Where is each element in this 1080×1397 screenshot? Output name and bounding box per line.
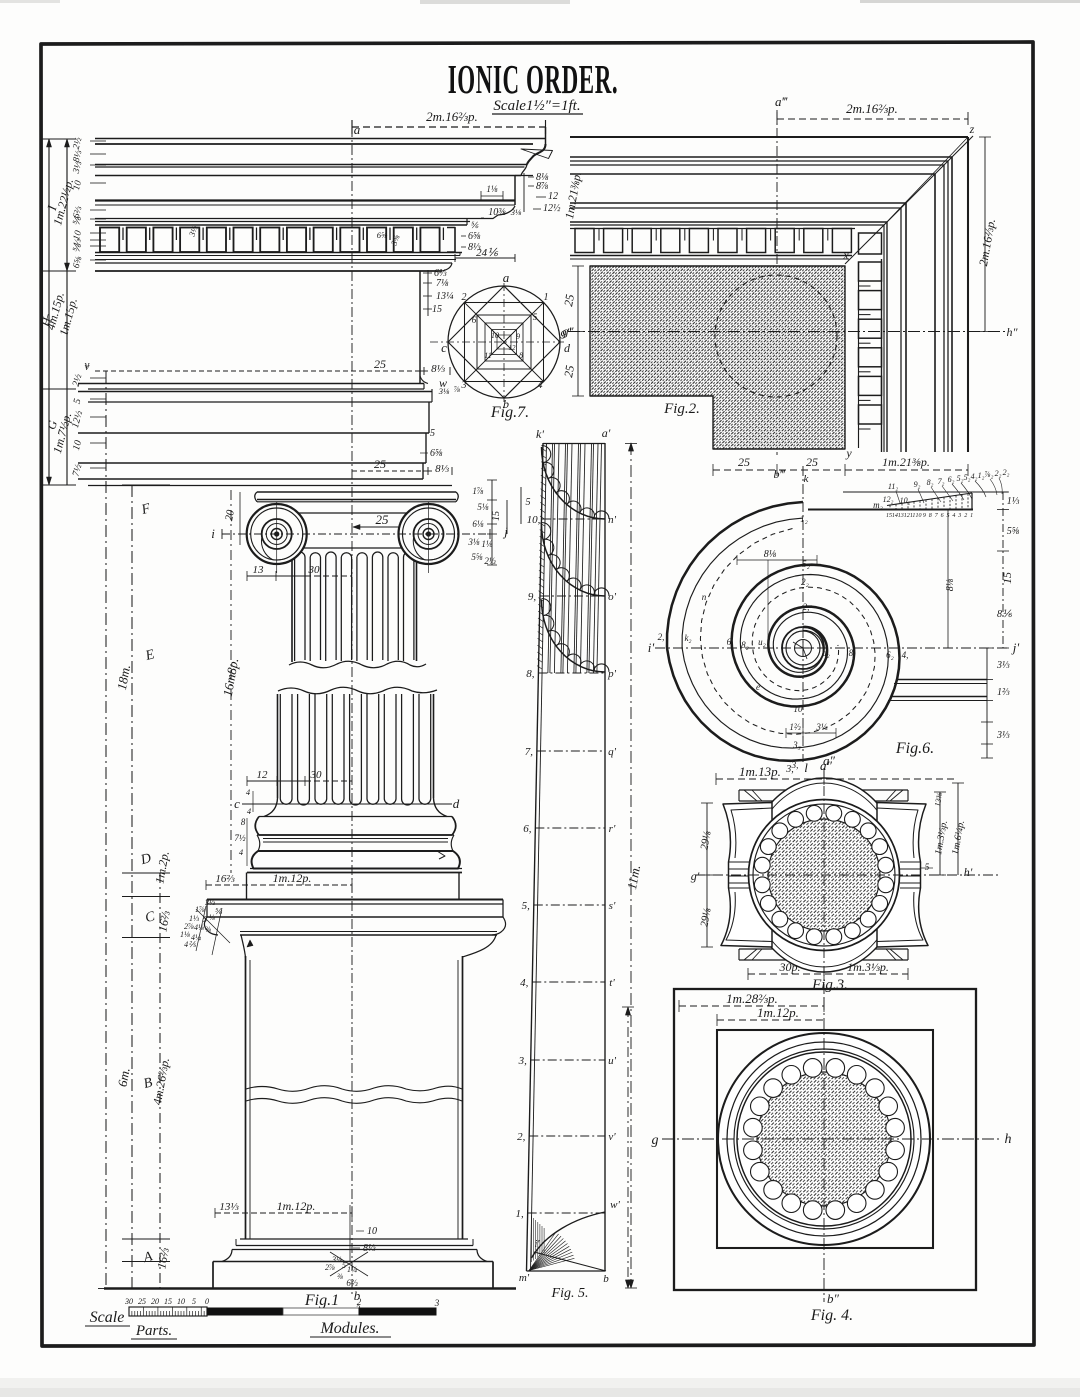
svg-text:1₂: 1₂: [800, 514, 808, 524]
svg-text:7₂: 7₂: [938, 477, 945, 486]
svg-text:2: 2: [357, 1297, 362, 1307]
svg-text:h': h': [964, 865, 973, 879]
svg-text:25: 25: [561, 293, 577, 307]
svg-text:1: 1: [970, 513, 973, 519]
svg-text:Scale1½″=1ft.: Scale1½″=1ft.: [493, 98, 580, 114]
svg-text:4⅖: 4⅖: [184, 940, 196, 949]
svg-text:16⅔: 16⅔: [215, 873, 235, 885]
svg-text:10: 10: [916, 513, 922, 519]
svg-text:5₂: 5₂: [802, 559, 810, 569]
svg-text:1⅛: 1⅛: [180, 930, 190, 939]
svg-text:30p.: 30p.: [779, 960, 801, 974]
svg-text:g″: g″: [563, 324, 575, 338]
svg-text:1m.12p.: 1m.12p.: [277, 1199, 316, 1213]
svg-text:13¼: 13¼: [436, 291, 454, 302]
svg-text:12₂: 12₂: [883, 495, 894, 504]
svg-text:1,: 1,: [516, 1208, 525, 1220]
svg-text:6: 6: [941, 513, 944, 519]
svg-text:a: a: [354, 122, 361, 137]
svg-text:5,: 5,: [522, 900, 531, 912]
svg-text:3⅓: 3⅓: [996, 660, 1010, 671]
svg-text:Fig.1: Fig.1: [304, 1292, 339, 1309]
svg-text:⅜: ⅜: [337, 1272, 343, 1281]
svg-text:2m.16⅔p.: 2m.16⅔p.: [846, 101, 898, 116]
svg-text:c: c: [441, 340, 447, 355]
svg-text:8₂: 8₂: [927, 478, 934, 487]
svg-text:c: c: [234, 796, 240, 811]
svg-text:y: y: [845, 446, 852, 460]
svg-text:4: 4: [952, 512, 955, 519]
svg-text:1: 1: [544, 292, 549, 303]
svg-text:30: 30: [124, 1297, 133, 1306]
svg-text:n: n: [702, 592, 707, 602]
svg-text:9,: 9,: [528, 591, 537, 603]
svg-text:b″: b″: [827, 1291, 840, 1306]
svg-text:2: 2: [964, 513, 967, 519]
svg-text:1⅛: 1⅛: [481, 539, 493, 549]
svg-text:e: e: [756, 682, 760, 692]
svg-text:5₂: 5₂: [957, 474, 964, 483]
svg-text:3,: 3,: [518, 1055, 528, 1067]
svg-text:m₂: m₂: [873, 500, 883, 510]
svg-text:5: 5: [192, 1297, 196, 1306]
svg-text:8: 8: [519, 351, 523, 360]
svg-text:3⅓: 3⅓: [204, 898, 215, 907]
svg-text:6⅝: 6⅝: [468, 231, 481, 242]
svg-text:25: 25: [561, 364, 577, 378]
svg-text:u': u': [608, 1055, 617, 1067]
svg-text:10,: 10,: [527, 514, 541, 526]
svg-text:30: 30: [310, 769, 323, 781]
svg-text:15: 15: [491, 511, 502, 521]
svg-text:Fig.3.: Fig.3.: [811, 977, 848, 993]
svg-text:p': p': [607, 668, 617, 680]
svg-text:a': a': [602, 426, 611, 440]
svg-text:n': n': [608, 514, 617, 526]
svg-text:w: w: [439, 376, 447, 390]
svg-text:l: l: [804, 760, 808, 775]
svg-text:r': r': [609, 823, 616, 835]
svg-text:3⅓: 3⅓: [815, 722, 828, 732]
svg-text:⅚: ⅚: [470, 220, 479, 230]
svg-text:1⅓: 1⅓: [1007, 496, 1020, 507]
svg-text:25: 25: [374, 457, 386, 471]
svg-text:15: 15: [1000, 572, 1014, 584]
svg-text:Fig.6.: Fig.6.: [895, 740, 934, 757]
svg-text:g: g: [652, 1133, 659, 1148]
svg-text:v: v: [85, 359, 90, 371]
svg-text:h: h: [1005, 1132, 1012, 1147]
svg-text:8⅓: 8⅓: [435, 463, 450, 475]
svg-text:4: 4: [538, 380, 543, 391]
svg-text:8: 8: [241, 817, 246, 827]
svg-text:5: 5: [342, 1261, 346, 1270]
svg-text:1m.13p.: 1m.13p.: [739, 764, 781, 779]
svg-text:a₂: a₂: [822, 648, 830, 658]
svg-text:3⅛: 3⅛: [467, 537, 480, 547]
svg-text:a″: a″: [823, 753, 836, 768]
svg-text:2m.16⅔p.: 2m.16⅔p.: [426, 109, 478, 124]
svg-text:3,: 3,: [785, 764, 794, 775]
svg-text:0: 0: [205, 1297, 209, 1306]
svg-text:7,: 7,: [525, 746, 534, 758]
svg-text:IONIC ORDER.: IONIC ORDER.: [448, 57, 618, 103]
svg-text:3⅓: 3⅓: [996, 730, 1010, 741]
svg-text:8⅛: 8⅛: [764, 549, 777, 560]
svg-text:30: 30: [308, 564, 321, 576]
svg-text:13⅓: 13⅓: [219, 1201, 239, 1213]
svg-text:4⅛: 4⅛: [194, 923, 204, 932]
svg-text:t': t': [609, 977, 615, 989]
svg-text:11₂: 11₂: [888, 482, 898, 491]
svg-text:⅛: ⅛: [209, 913, 215, 922]
svg-text:v': v': [608, 1131, 616, 1143]
svg-text:20: 20: [151, 1297, 159, 1306]
svg-text:1m.28⅔p.: 1m.28⅔p.: [726, 991, 778, 1006]
svg-text:6⅝: 6⅝: [430, 448, 443, 459]
svg-text:10: 10: [491, 331, 499, 340]
svg-text:12: 12: [509, 344, 517, 352]
svg-text:5⅝: 5⅝: [1007, 526, 1020, 537]
svg-text:6: 6: [472, 315, 477, 325]
svg-text:b‴: b‴: [773, 467, 785, 481]
svg-text:6₂: 6₂: [886, 650, 894, 660]
svg-text:10: 10: [794, 704, 804, 714]
svg-text:5⅛: 5⅛: [477, 502, 489, 512]
svg-text:1⅔: 1⅔: [789, 722, 801, 732]
svg-text:h″: h″: [1007, 325, 1019, 339]
svg-text:Scale: Scale: [90, 1309, 125, 1326]
svg-text:8,: 8,: [526, 668, 535, 680]
svg-text:8₂: 8₂: [741, 640, 749, 650]
svg-text:4,: 4,: [902, 650, 909, 660]
svg-text:10⅜: 10⅜: [488, 207, 506, 218]
svg-text:Fig.7.: Fig.7.: [490, 404, 529, 421]
svg-text:12: 12: [904, 513, 910, 519]
svg-text:12½: 12½: [543, 203, 561, 214]
svg-text:3₃: 3₃: [792, 740, 801, 750]
svg-text:5: 5: [526, 497, 531, 508]
svg-text:Fig.2.: Fig.2.: [663, 401, 700, 417]
svg-text:8⅙: 8⅙: [997, 609, 1013, 620]
svg-text:a‴: a‴: [775, 94, 789, 109]
svg-text:24⅙: 24⅙: [476, 247, 499, 259]
svg-text:i': i': [648, 640, 655, 655]
svg-text:12: 12: [257, 769, 269, 781]
svg-text:11: 11: [484, 351, 491, 360]
svg-text:25: 25: [376, 512, 390, 527]
svg-text:q': q': [608, 746, 617, 758]
svg-text:2₂: 2₂: [995, 469, 1002, 478]
svg-text:8⅓: 8⅓: [363, 1243, 376, 1254]
svg-text:5⅝: 5⅝: [471, 552, 483, 562]
svg-text:8,: 8,: [849, 648, 856, 658]
svg-text:9₂: 9₂: [914, 480, 921, 489]
svg-text:i': i': [535, 1239, 541, 1250]
svg-text:Parts.: Parts.: [135, 1323, 172, 1339]
svg-text:5: 5: [533, 312, 538, 322]
svg-text:8⅞: 8⅞: [536, 181, 549, 192]
svg-text:4₂: 4₂: [971, 472, 978, 481]
svg-text:Fig. 5.: Fig. 5.: [551, 1286, 589, 1301]
svg-text:6,: 6,: [523, 823, 532, 835]
svg-text:5₂: 5₂: [964, 473, 971, 482]
svg-text:Modules.: Modules.: [319, 1320, 379, 1337]
svg-text:1m.12p.: 1m.12p.: [757, 1005, 799, 1020]
svg-text:j': j': [1011, 640, 1020, 655]
svg-text:2,: 2,: [517, 1131, 526, 1143]
svg-text:13: 13: [253, 564, 265, 576]
svg-text:6,: 6,: [727, 637, 734, 647]
svg-text:3: 3: [957, 513, 961, 519]
svg-text:9: 9: [923, 513, 926, 519]
svg-text:6⅔: 6⅔: [346, 1278, 358, 1288]
svg-text:w': w': [610, 1199, 620, 1211]
svg-text:15: 15: [432, 304, 442, 315]
svg-text:10: 10: [177, 1297, 185, 1306]
svg-text:5: 5: [925, 862, 930, 872]
svg-text:3⅛: 3⅛: [510, 207, 522, 217]
svg-text:m': m': [519, 1272, 530, 1284]
svg-text:2⅓: 2⅓: [484, 556, 496, 566]
svg-text:6⅛: 6⅛: [472, 519, 484, 529]
svg-text:2⅞: 2⅞: [325, 1263, 335, 1272]
svg-text:⅞: ⅞: [454, 384, 460, 394]
svg-text:d: d: [564, 341, 571, 355]
svg-text:10: 10: [367, 1226, 377, 1237]
svg-text:3: 3: [461, 380, 467, 391]
svg-text:12: 12: [548, 191, 558, 202]
svg-text:8⅛: 8⅛: [945, 578, 956, 591]
svg-text:b: b: [603, 1273, 609, 1285]
svg-text:8: 8: [929, 513, 932, 519]
svg-text:25: 25: [374, 357, 386, 371]
svg-text:6⅝: 6⅝: [377, 230, 388, 240]
svg-text:2₂: 2₂: [801, 577, 809, 587]
svg-text:15: 15: [164, 1297, 172, 1306]
svg-text:2,: 2,: [658, 632, 665, 642]
svg-text:1⅔: 1⅔: [997, 687, 1010, 698]
svg-text:d: d: [453, 796, 460, 811]
svg-text:Fig. 4.: Fig. 4.: [810, 1307, 853, 1324]
svg-text:a: a: [503, 270, 510, 285]
svg-text:⅞₂: ⅞₂: [985, 470, 994, 479]
svg-text:25: 25: [138, 1297, 146, 1306]
svg-text:1⅛: 1⅛: [486, 184, 498, 194]
svg-text:2: 2: [462, 292, 467, 303]
svg-text:⅜: ⅜: [205, 925, 211, 934]
svg-text:1m.3⅓p.: 1m.3⅓p.: [847, 960, 889, 974]
svg-text:s': s': [609, 900, 616, 912]
svg-text:9: 9: [516, 332, 520, 341]
svg-text:3: 3: [434, 1298, 440, 1308]
svg-text:25: 25: [806, 455, 818, 469]
svg-text:7⅛: 7⅛: [436, 278, 449, 289]
svg-text:k₂: k₂: [684, 633, 691, 643]
svg-text:1m.12p.: 1m.12p.: [273, 871, 312, 885]
svg-text:i: i: [211, 526, 215, 541]
svg-text:8⅓: 8⅓: [431, 363, 446, 375]
svg-text:5: 5: [430, 428, 435, 439]
svg-text:1m.21⅜p.: 1m.21⅜p.: [882, 455, 930, 469]
svg-text:2₂: 2₂: [1003, 468, 1010, 477]
svg-text:1₂: 1₂: [978, 471, 985, 480]
svg-text:4,: 4,: [520, 977, 529, 989]
svg-text:2,: 2,: [803, 602, 810, 612]
svg-text:6₂: 6₂: [948, 475, 955, 484]
svg-text:1⅞: 1⅞: [472, 486, 484, 496]
svg-text:o': o': [608, 591, 617, 603]
svg-text:z: z: [969, 122, 975, 136]
svg-text:x: x: [842, 248, 849, 262]
svg-text:25: 25: [738, 455, 750, 469]
svg-text:10₂: 10₂: [900, 496, 911, 505]
svg-text:7½: 7½: [234, 833, 246, 843]
svg-text:g': g': [691, 869, 700, 883]
svg-text:k': k': [536, 427, 544, 441]
svg-text:и₂: и₂: [758, 637, 766, 647]
